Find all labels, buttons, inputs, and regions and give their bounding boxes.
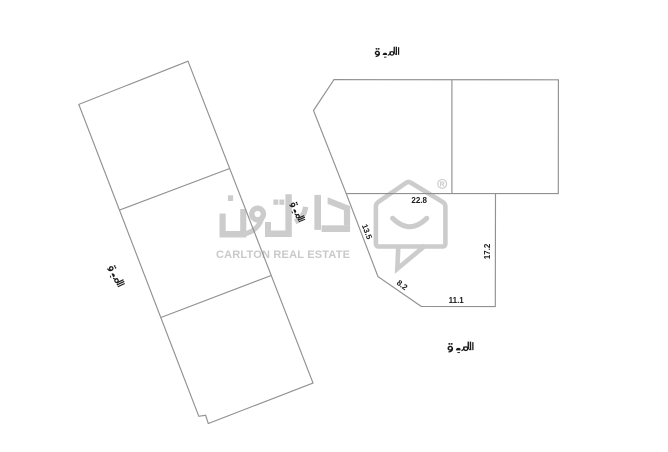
svg-text:11.1: 11.1 — [449, 296, 465, 305]
svg-text:22.8: 22.8 — [411, 196, 427, 205]
svg-text:CARLTON REAL ESTATE: CARLTON REAL ESTATE — [216, 249, 350, 261]
svg-text:13.5: 13.5 — [360, 223, 374, 241]
svg-text:17.2: 17.2 — [483, 243, 492, 259]
svg-text:R: R — [440, 182, 445, 189]
